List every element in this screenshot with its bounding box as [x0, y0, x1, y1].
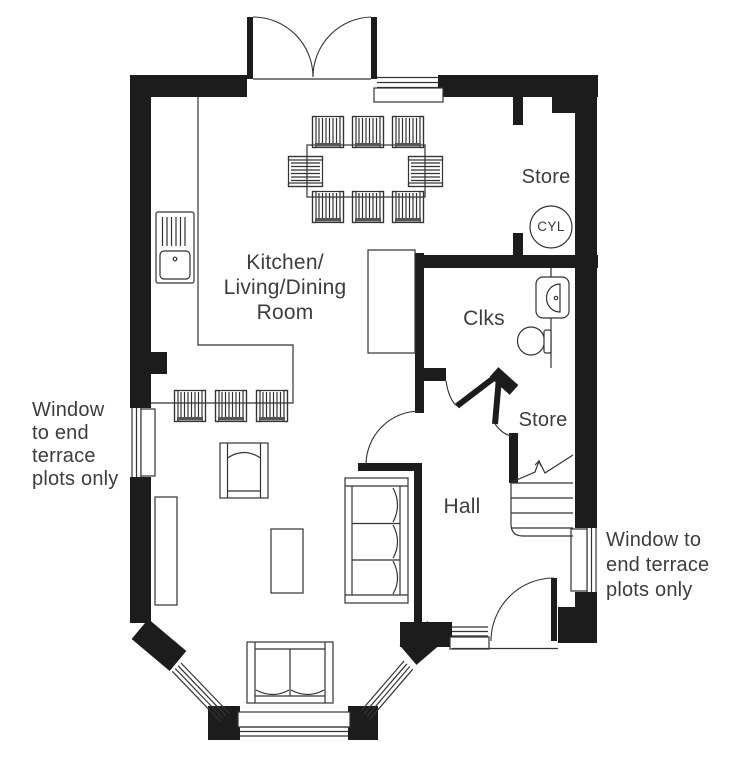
bar-stool: [175, 391, 206, 422]
dining-chair: [353, 192, 384, 223]
french-doors: [247, 17, 377, 79]
dining-chairs: [289, 117, 443, 223]
stairs: [511, 455, 573, 536]
right-window-annotation: Window to end terrace plots only: [606, 528, 736, 603]
bay-window-bottom: [238, 712, 350, 736]
bar-stools: [175, 391, 288, 422]
sideboard: [155, 497, 177, 605]
dining-chair: [289, 157, 323, 187]
floor-plan-canvas: [0, 0, 741, 769]
dining-chair: [353, 117, 384, 148]
bar-stool: [257, 391, 288, 422]
kitchen-sink: [156, 212, 194, 283]
sofa-two-seat: [247, 642, 333, 703]
hall-window: [450, 627, 558, 649]
dining-chair: [393, 192, 424, 223]
clks-door: [446, 374, 499, 406]
wash-basin: [536, 277, 569, 318]
room-label-clks: Clks: [434, 306, 534, 331]
room-label-store-under-stairs: Store: [493, 408, 593, 433]
room-label-store-top: Store: [496, 165, 596, 190]
dining-table: [307, 145, 425, 197]
dining-chair: [313, 192, 344, 223]
sofa-three-seat: [345, 478, 408, 603]
armchair: [220, 443, 268, 498]
right-window: [571, 528, 596, 592]
front-door: [491, 578, 557, 641]
floor-plan: Kitchen/ Living/Dining Room Store CYL Cl…: [0, 0, 741, 769]
cylinder-label: CYL: [521, 220, 581, 234]
dining-chair: [393, 117, 424, 148]
coffee-table: [271, 529, 303, 593]
dining-chair: [313, 117, 344, 148]
room-label-kitchen-living-dining: Kitchen/ Living/Dining Room: [200, 250, 370, 325]
left-window-annotation: Window to end terrace plots only: [32, 399, 152, 491]
room-label-hall: Hall: [412, 494, 512, 519]
tall-unit: [368, 250, 415, 353]
bar-stool: [216, 391, 247, 422]
top-window: [374, 78, 443, 103]
hall-door: [366, 411, 420, 465]
toilet: [518, 327, 552, 355]
